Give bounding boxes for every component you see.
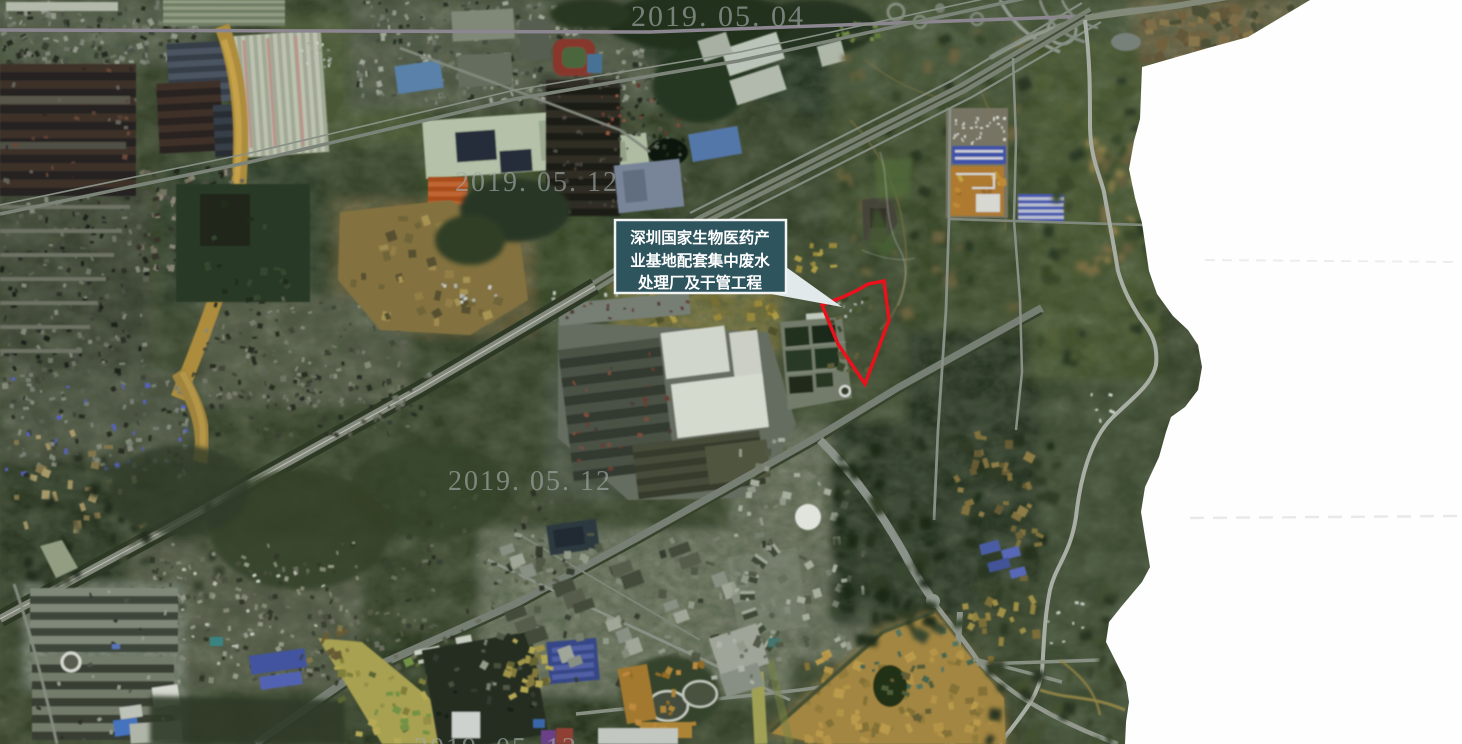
- svg-text:深圳国家生物医药产: 深圳国家生物医药产: [630, 228, 770, 247]
- svg-text:业基地配套集中废水: 业基地配套集中废水: [630, 251, 770, 270]
- svg-text:2019. 05. 12: 2019. 05. 12: [414, 733, 578, 744]
- svg-text:2019. 05. 04: 2019. 05. 04: [631, 0, 805, 33]
- svg-text:2019. 05. 12: 2019. 05. 12: [455, 167, 619, 198]
- svg-text:2019. 05. 12: 2019. 05. 12: [448, 466, 612, 497]
- svg-text:处理厂及干管工程: 处理厂及干管工程: [637, 273, 763, 292]
